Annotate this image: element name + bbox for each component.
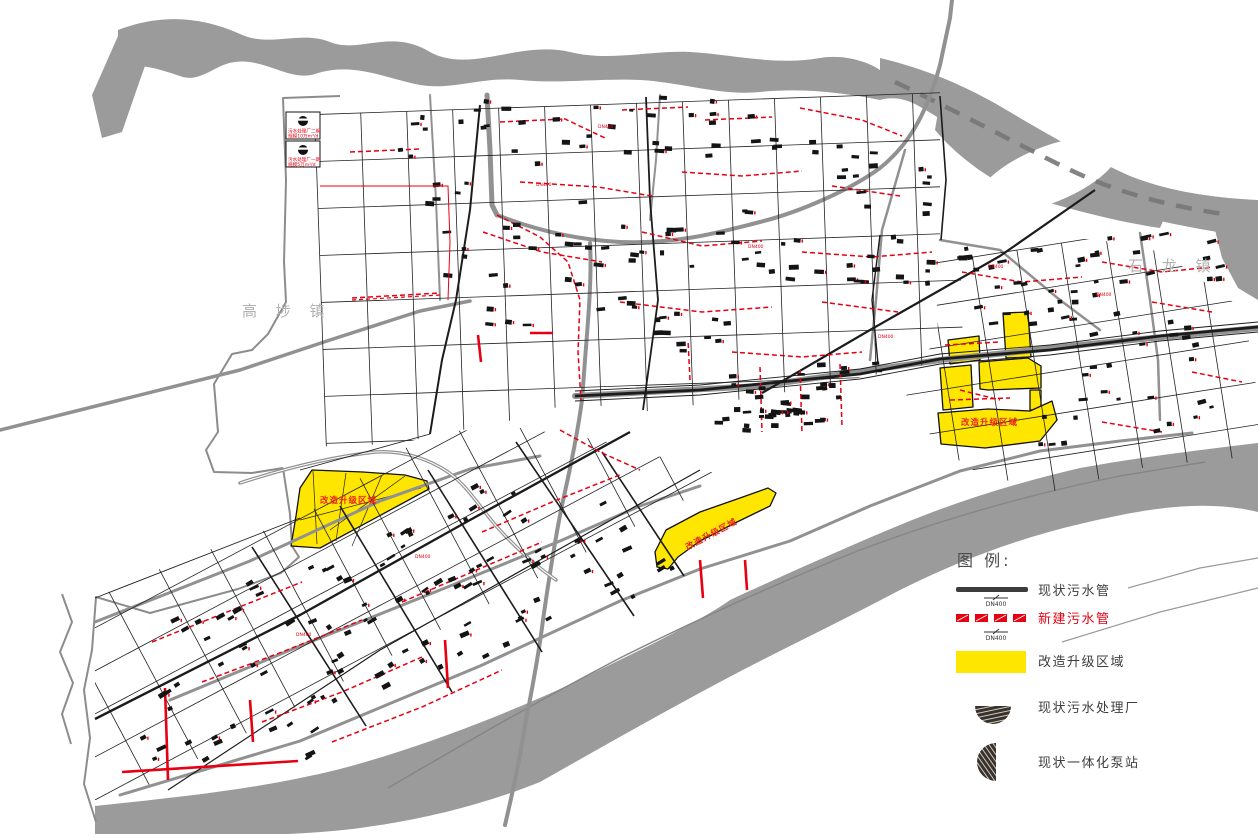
sewage-plan-map: 污水处理厂二期 规模10万m³/d 污水处理厂一期 规模5万m³/d 高 埗 镇…	[0, 0, 1258, 834]
treatment-plant-legend-icon	[975, 706, 1011, 724]
svg-text:DN400: DN400	[1096, 292, 1112, 298]
top-river	[118, 19, 880, 100]
svg-text:现状污水处理厂: 现状污水处理厂	[1038, 701, 1140, 716]
svg-text:DN400: DN400	[986, 635, 1007, 642]
new-pipe-swatch	[956, 614, 1026, 622]
svg-text:DN400: DN400	[415, 554, 431, 560]
pump-station-legend-icon	[977, 743, 996, 781]
svg-text:DN400: DN400	[536, 182, 552, 188]
legend-item-upgrade-zone: 改造升级区域	[956, 651, 1125, 673]
legend: 图 例: DN400 现状污水管 DN400 新建污水管 改造升级区域 现状污水	[956, 551, 1140, 781]
treatment-plant-icon	[298, 145, 308, 155]
top-river-branch	[92, 36, 150, 138]
svg-text:污水处理厂一期: 污水处理厂一期	[288, 156, 321, 163]
svg-text:DN400: DN400	[878, 334, 894, 340]
svg-text:改造升级区域: 改造升级区域	[1038, 655, 1125, 670]
zone-label-west: 改造升级区域	[320, 495, 377, 506]
existing-pipe-swatch	[956, 587, 1028, 592]
svg-text:规模10万m³/d: 规模10万m³/d	[288, 133, 318, 140]
treatment-plant-icon	[298, 116, 308, 126]
svg-text:DN400: DN400	[296, 632, 312, 638]
boundary-layer	[60, 96, 340, 822]
upgrade-zone-swatch	[956, 651, 1026, 673]
svg-text:DN400: DN400	[988, 264, 1004, 270]
bottom-river	[95, 443, 1258, 834]
town-label-gaobu: 高 埗 镇	[242, 302, 332, 320]
svg-text:现状一体化泵站: 现状一体化泵站	[1038, 756, 1140, 771]
plant-callout-2: 污水处理厂二期 规模10万m³/d	[286, 112, 321, 140]
zone-label-east: 改造升级区域	[961, 417, 1018, 428]
svg-text:新建污水管: 新建污水管	[1038, 611, 1111, 627]
legend-item-plant: 现状污水处理厂	[975, 701, 1140, 724]
svg-text:DN400: DN400	[748, 244, 764, 250]
map-svg: 污水处理厂二期 规模10万m³/d 污水处理厂一期 规模5万m³/d 高 埗 镇…	[0, 0, 1258, 834]
plant-callout-1: 污水处理厂一期 规模5万m³/d	[286, 141, 321, 168]
svg-text:DN400: DN400	[986, 601, 1007, 608]
svg-text:DN400: DN400	[598, 124, 614, 130]
treatment-plant-callouts: 污水处理厂二期 规模10万m³/d 污水处理厂一期 规模5万m³/d	[286, 112, 450, 300]
svg-text:现状污水管: 现状污水管	[1038, 584, 1111, 599]
far-bank-line-1	[1128, 558, 1258, 588]
legend-item-pump: 现状一体化泵站	[977, 743, 1140, 781]
legend-item-new-pipe: DN400 新建污水管	[956, 611, 1111, 642]
svg-text:规模5万m³/d: 规模5万m³/d	[288, 161, 316, 168]
town-label-shilong: 石 龙 镇	[1128, 257, 1218, 275]
svg-text:污水处理厂二期: 污水处理厂二期	[288, 128, 321, 135]
legend-item-existing-pipe: DN400 现状污水管	[956, 584, 1111, 608]
legend-title: 图 例:	[957, 551, 1011, 570]
